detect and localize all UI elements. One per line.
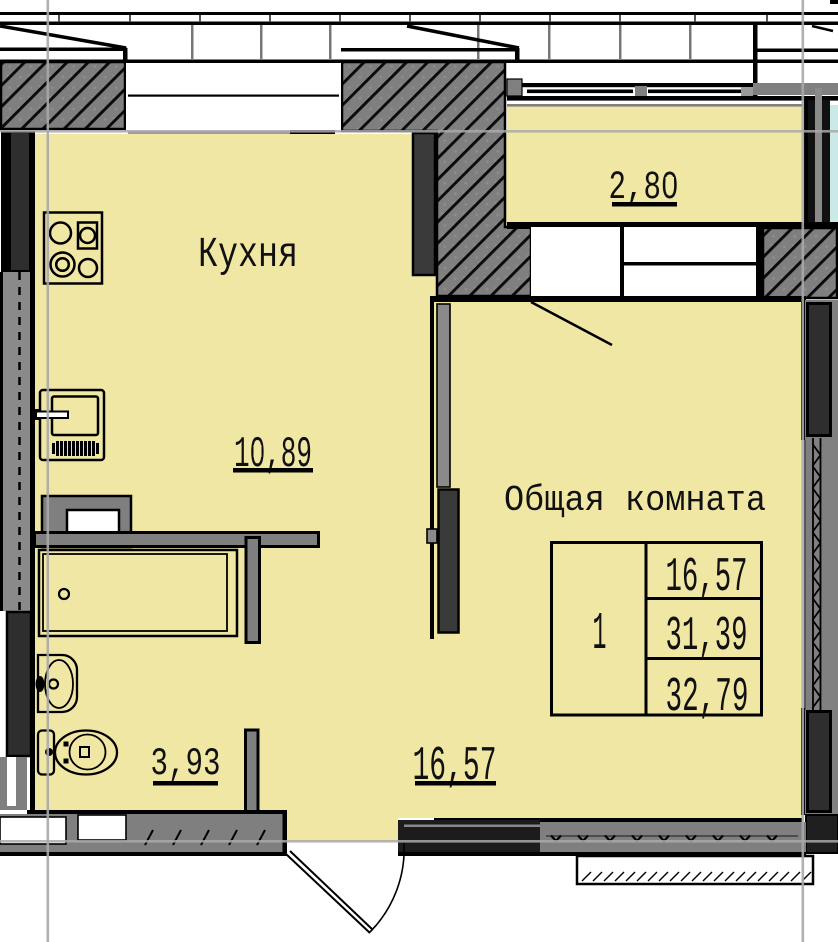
svg-text:Общая комната: Общая комната [504, 480, 766, 521]
svg-text:Кухня: Кухня [198, 230, 298, 279]
svg-text:3,93: 3,93 [151, 742, 221, 786]
svg-text:1: 1 [593, 604, 607, 664]
svg-text:16,57: 16,57 [413, 740, 497, 794]
svg-text:16,57: 16,57 [666, 551, 748, 605]
svg-text:10,89: 10,89 [234, 431, 312, 480]
svg-text:32,79: 32,79 [666, 671, 749, 725]
svg-text:31,39: 31,39 [666, 610, 748, 664]
